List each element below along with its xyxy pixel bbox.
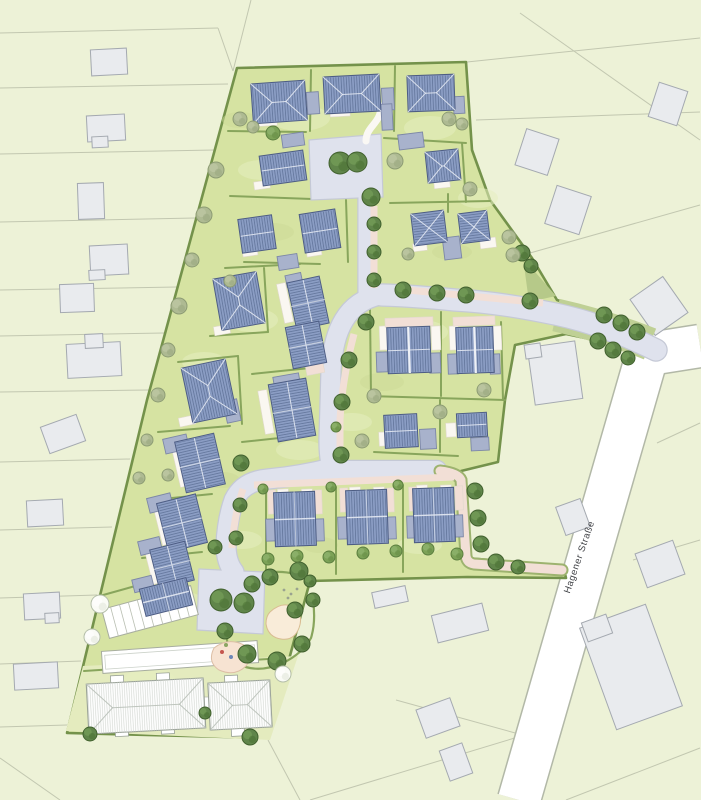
- tree: [161, 343, 175, 357]
- tree: [347, 152, 367, 172]
- house-gable: [299, 209, 341, 253]
- house-pair: [413, 487, 456, 542]
- tree: [229, 531, 243, 545]
- tree: [262, 553, 274, 565]
- tree: [242, 729, 258, 745]
- tree: [395, 282, 411, 298]
- existing-building: [13, 662, 58, 690]
- tree: [506, 248, 520, 262]
- tree: [590, 333, 606, 349]
- tree: [333, 447, 349, 463]
- existing-building: [85, 334, 104, 349]
- tree: [451, 548, 463, 560]
- tree: [326, 482, 336, 492]
- tree: [524, 259, 538, 273]
- tree: [199, 707, 211, 719]
- tree: [334, 394, 350, 410]
- paved-patio: [385, 317, 433, 328]
- tree: [83, 727, 97, 741]
- tree: [596, 307, 612, 323]
- tree: [357, 547, 369, 559]
- tree: [217, 623, 233, 639]
- existing-building: [26, 499, 63, 527]
- house-gable: [384, 414, 419, 449]
- garage: [381, 104, 393, 131]
- tree: [422, 543, 434, 555]
- tree: [621, 351, 635, 365]
- tree: [477, 383, 491, 397]
- tree: [355, 434, 369, 448]
- tree: [467, 483, 483, 499]
- tree: [287, 602, 303, 618]
- site-plan: Hagener Straße: [0, 0, 701, 800]
- tree: [402, 248, 414, 260]
- tree: [294, 636, 310, 652]
- tree: [511, 560, 525, 574]
- tree: [208, 540, 222, 554]
- tree: [306, 593, 320, 607]
- tree: [522, 293, 538, 309]
- tree: [613, 315, 629, 331]
- house-row: [285, 321, 326, 369]
- tree: [367, 217, 381, 231]
- tree: [233, 498, 247, 512]
- tree: [362, 188, 380, 206]
- existing-building: [524, 343, 542, 359]
- tree: [247, 121, 259, 133]
- tree: [233, 455, 249, 471]
- tree: [488, 554, 504, 570]
- tree: [162, 469, 174, 481]
- tree: [331, 422, 341, 432]
- tree: [224, 275, 236, 287]
- terrace: [431, 326, 441, 350]
- existing-building: [89, 270, 106, 281]
- site-plan-map: Hagener Straße: [0, 0, 701, 800]
- tree: [196, 207, 212, 223]
- tree: [258, 484, 268, 494]
- garage: [376, 352, 388, 372]
- map-layers: [0, 0, 701, 800]
- tree: [629, 324, 645, 340]
- tree: [133, 472, 145, 484]
- tree: [502, 230, 516, 244]
- tree: [323, 551, 335, 563]
- planting-mark: [296, 588, 299, 591]
- tree: [367, 245, 381, 259]
- planting-mark: [287, 597, 290, 600]
- tree: [433, 405, 447, 419]
- shrub: [91, 595, 109, 613]
- tree: [244, 576, 260, 592]
- tree: [208, 162, 224, 178]
- shrub: [84, 629, 100, 645]
- tree: [210, 589, 232, 611]
- tree: [358, 314, 374, 330]
- tree: [262, 569, 278, 585]
- garage: [419, 429, 436, 450]
- paved-patio: [453, 316, 495, 326]
- tree: [291, 550, 303, 562]
- house-hip: [407, 74, 455, 112]
- tree: [238, 645, 256, 663]
- existing-building: [92, 136, 109, 148]
- terrace: [446, 423, 457, 438]
- house-duplex: [387, 326, 432, 373]
- planting-mark: [290, 593, 293, 596]
- tree: [605, 342, 621, 358]
- tree: [473, 536, 489, 552]
- garage: [277, 254, 299, 271]
- garage: [398, 132, 425, 150]
- existing-building: [90, 48, 127, 76]
- play-equipment: [229, 655, 233, 659]
- existing-building: [45, 613, 60, 624]
- play-equipment: [224, 643, 228, 647]
- house-hipx: [411, 210, 448, 246]
- tree: [463, 182, 477, 196]
- garage: [281, 132, 305, 148]
- tree: [367, 389, 381, 403]
- tree: [171, 298, 187, 314]
- lawn-patch: [276, 440, 324, 460]
- tree: [185, 253, 199, 267]
- tree: [458, 287, 474, 303]
- house-gable: [238, 215, 276, 253]
- shrub: [275, 666, 291, 682]
- existing-building: [60, 283, 95, 312]
- tree: [234, 593, 254, 613]
- house-pair: [346, 489, 389, 544]
- house-hipx: [458, 210, 490, 243]
- tree: [429, 285, 445, 301]
- house-hip: [213, 272, 265, 331]
- tree: [304, 575, 316, 587]
- tree: [367, 273, 381, 287]
- house-hip: [425, 149, 461, 183]
- garage: [471, 437, 490, 451]
- house-hip: [251, 80, 308, 124]
- tree: [141, 434, 153, 446]
- tree: [387, 153, 403, 169]
- lawn-patch: [360, 373, 404, 391]
- house-pair: [274, 491, 317, 546]
- tree: [470, 510, 486, 526]
- house-gable: [259, 150, 307, 186]
- tree: [456, 118, 468, 130]
- tree: [151, 388, 165, 402]
- planting-mark: [283, 589, 286, 592]
- garage: [306, 92, 320, 115]
- tree: [442, 112, 456, 126]
- tree: [233, 112, 247, 126]
- house-hip: [323, 74, 381, 114]
- house-duplex: [456, 326, 495, 373]
- tree: [390, 545, 402, 557]
- tree: [266, 126, 280, 140]
- house-gable: [456, 412, 487, 438]
- existing-building: [77, 183, 104, 220]
- tree: [341, 352, 357, 368]
- paved-patio: [455, 486, 464, 510]
- play-equipment: [220, 650, 224, 654]
- tree: [393, 480, 403, 490]
